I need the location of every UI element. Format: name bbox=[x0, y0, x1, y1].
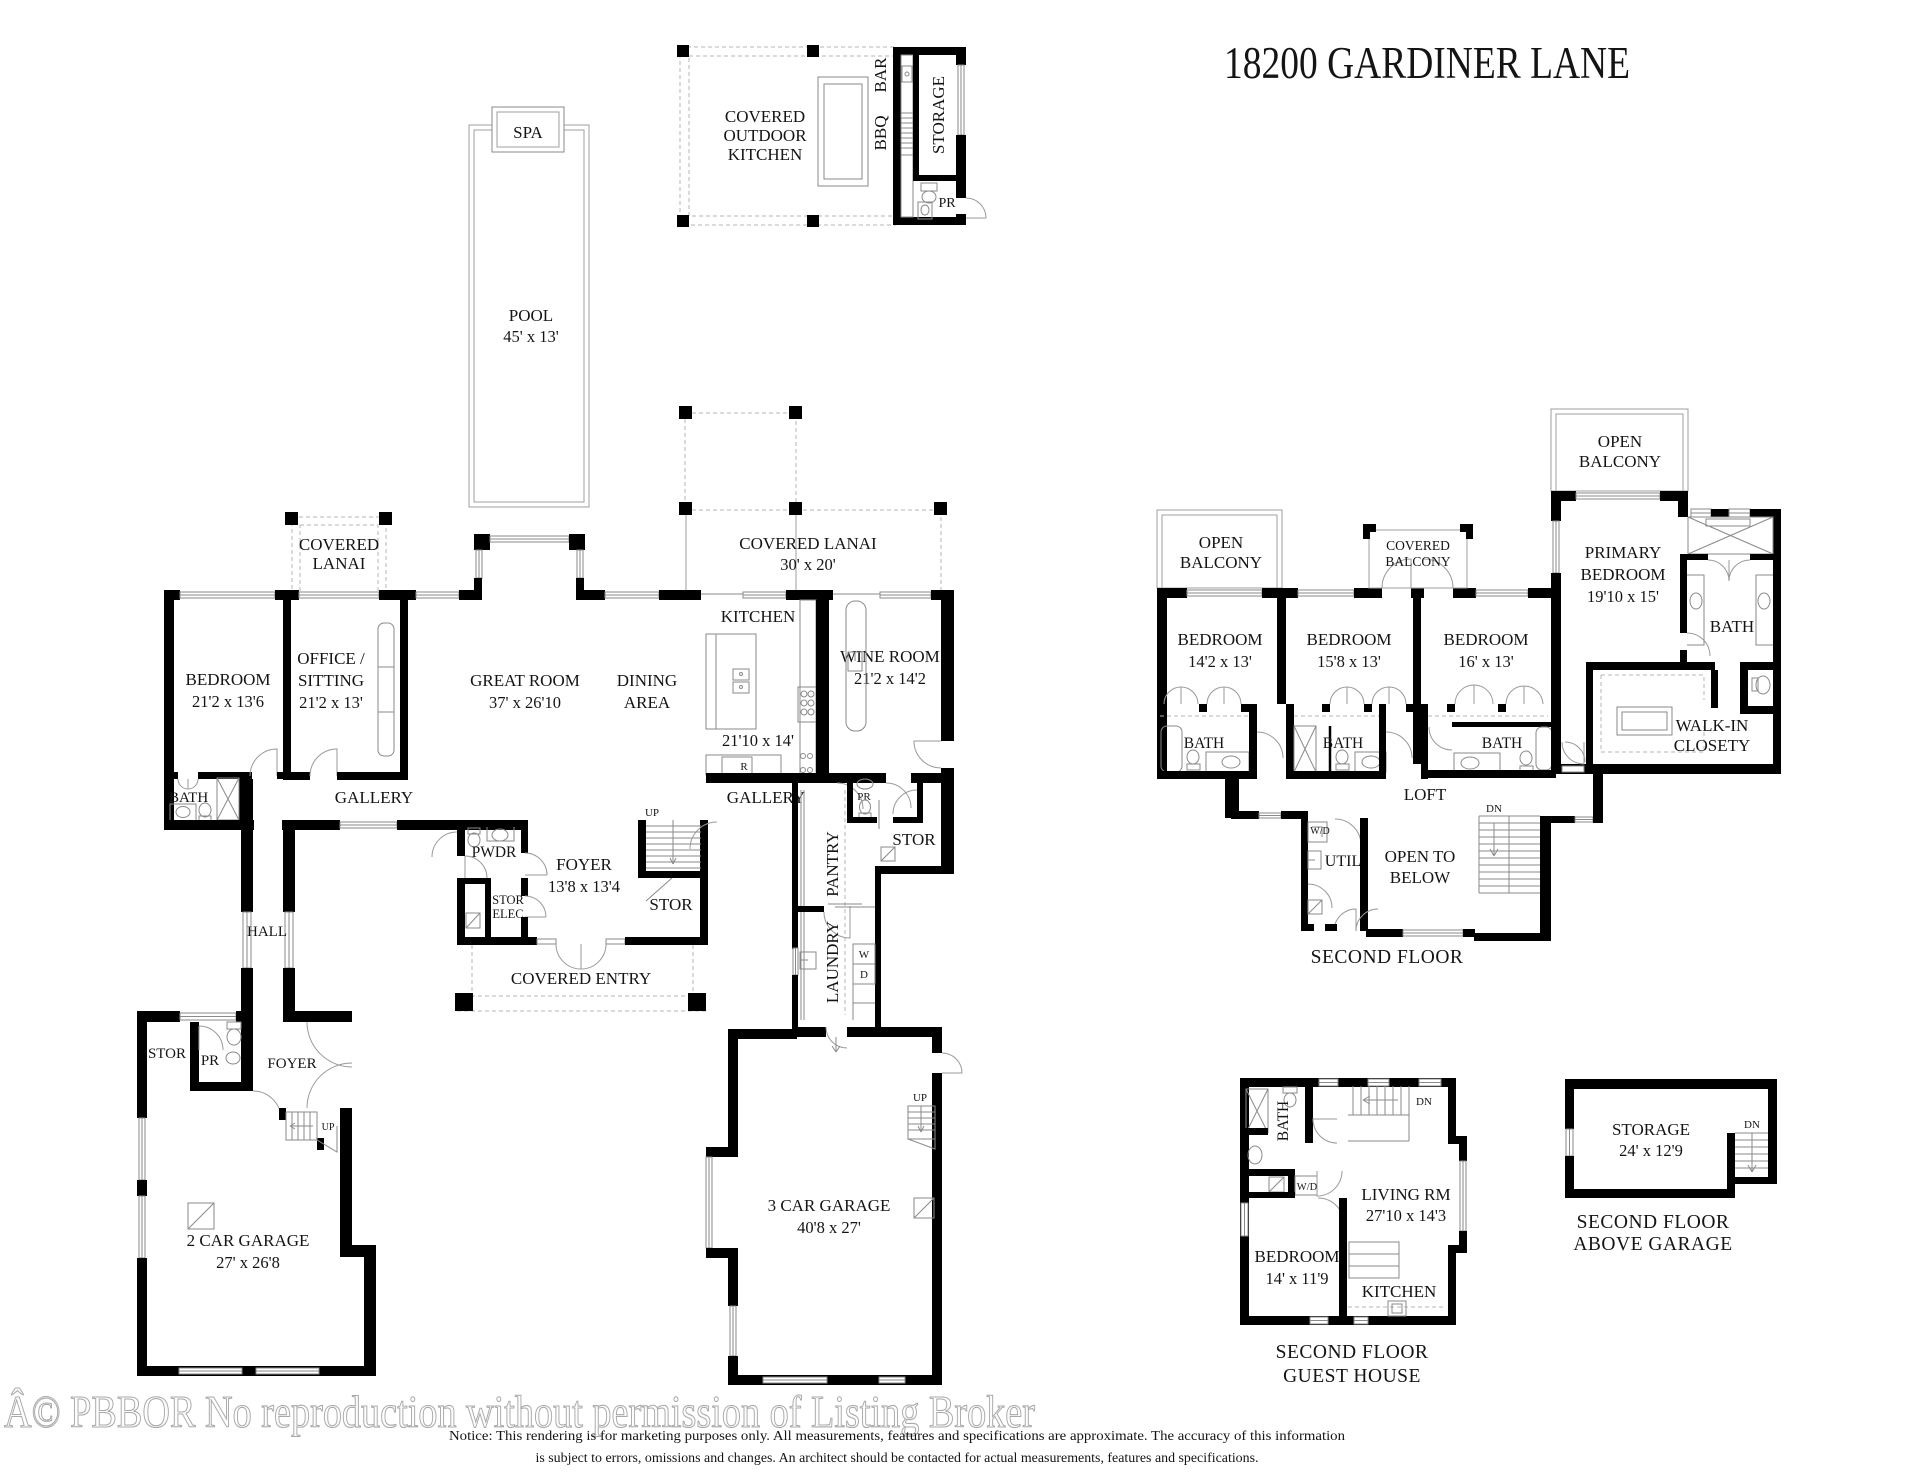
svg-text:BEDROOM: BEDROOM bbox=[1443, 630, 1528, 649]
svg-text:19'10 x 15': 19'10 x 15' bbox=[1587, 587, 1659, 606]
svg-text:BATH: BATH bbox=[1275, 1101, 1292, 1141]
svg-text:BATH: BATH bbox=[1323, 735, 1363, 752]
svg-text:15'8 x 13': 15'8 x 13' bbox=[1317, 652, 1381, 671]
svg-text:21'2 x 14'2: 21'2 x 14'2 bbox=[854, 669, 926, 688]
svg-text:GALLERY: GALLERY bbox=[335, 788, 413, 807]
svg-text:14' x 11'9: 14' x 11'9 bbox=[1265, 1269, 1328, 1288]
svg-text:BEDROOM: BEDROOM bbox=[1177, 630, 1262, 649]
svg-text:40'8 x 27': 40'8 x 27' bbox=[797, 1218, 861, 1237]
svg-text:DN: DN bbox=[1486, 803, 1502, 815]
svg-text:D: D bbox=[860, 969, 868, 981]
svg-text:STORAGE: STORAGE bbox=[929, 76, 948, 154]
svg-text:2 CAR GARAGE: 2 CAR GARAGE bbox=[187, 1231, 310, 1250]
svg-text:SPA: SPA bbox=[513, 123, 543, 142]
svg-text:OPEN: OPEN bbox=[1199, 533, 1243, 552]
svg-text:SECOND FLOOR: SECOND FLOOR bbox=[1311, 947, 1464, 968]
svg-text:PWDR: PWDR bbox=[472, 844, 517, 861]
svg-text:DN: DN bbox=[1416, 1096, 1432, 1108]
svg-text:BATH: BATH bbox=[1482, 735, 1522, 752]
svg-text:COVERED ENTRY: COVERED ENTRY bbox=[511, 969, 651, 988]
svg-text:LIVING RM: LIVING RM bbox=[1361, 1185, 1450, 1204]
svg-text:W: W bbox=[859, 949, 870, 961]
svg-text:BATH: BATH bbox=[1710, 617, 1754, 636]
svg-text:16' x 13': 16' x 13' bbox=[1458, 652, 1513, 671]
svg-text:STORAGE: STORAGE bbox=[1612, 1120, 1690, 1139]
svg-text:Notice: This rendering is for: Notice: This rendering is for marketing … bbox=[449, 1428, 1345, 1443]
svg-text:DN: DN bbox=[1744, 1119, 1760, 1131]
svg-text:LANAI: LANAI bbox=[313, 554, 366, 573]
svg-text:COVERED: COVERED bbox=[725, 107, 805, 126]
svg-text:STOR: STOR bbox=[492, 893, 524, 907]
svg-text:LOFT: LOFT bbox=[1404, 785, 1447, 804]
svg-text:BEDROOM: BEDROOM bbox=[1580, 565, 1665, 584]
svg-text:CLOSETY: CLOSETY bbox=[1674, 736, 1751, 755]
svg-text:BATH: BATH bbox=[169, 790, 208, 806]
svg-text:SITTING: SITTING bbox=[298, 671, 364, 690]
svg-text:ELEC: ELEC bbox=[492, 907, 523, 921]
svg-text:BELOW: BELOW bbox=[1390, 868, 1451, 887]
svg-text:WALK-IN: WALK-IN bbox=[1676, 716, 1749, 735]
svg-text:27' x 26'8: 27' x 26'8 bbox=[216, 1253, 280, 1272]
svg-text:14'2 x 13': 14'2 x 13' bbox=[1188, 652, 1252, 671]
svg-text:OPEN TO: OPEN TO bbox=[1385, 847, 1456, 866]
svg-text:PR: PR bbox=[938, 196, 956, 211]
svg-text:COVERED: COVERED bbox=[299, 535, 379, 554]
svg-text:PR: PR bbox=[201, 1053, 219, 1069]
svg-text:21'2 x 13'6: 21'2 x 13'6 bbox=[192, 692, 264, 711]
svg-text:SECOND FLOOR: SECOND FLOOR bbox=[1577, 1212, 1730, 1233]
svg-text:30' x 20': 30' x 20' bbox=[780, 555, 835, 574]
svg-text:13'8 x 13'4: 13'8 x 13'4 bbox=[548, 877, 620, 896]
svg-text:UP: UP bbox=[322, 1122, 335, 1133]
svg-text:27'10 x 14'3: 27'10 x 14'3 bbox=[1366, 1206, 1446, 1225]
svg-text:R: R bbox=[740, 761, 748, 773]
svg-text:21'10 x 14': 21'10 x 14' bbox=[722, 731, 794, 750]
svg-text:BALCONY: BALCONY bbox=[1579, 452, 1661, 471]
svg-text:BALCONY: BALCONY bbox=[1385, 554, 1451, 569]
svg-text:PRIMARY: PRIMARY bbox=[1585, 543, 1662, 562]
svg-text:W/D: W/D bbox=[1310, 826, 1329, 837]
svg-text:BEDROOM: BEDROOM bbox=[1254, 1247, 1339, 1266]
svg-text:GUEST HOUSE: GUEST HOUSE bbox=[1283, 1366, 1421, 1387]
svg-text:UP: UP bbox=[913, 1092, 927, 1104]
svg-text:STOR: STOR bbox=[148, 1046, 186, 1062]
svg-text:LAUNDRY: LAUNDRY bbox=[823, 921, 842, 1003]
svg-text:3 CAR GARAGE: 3 CAR GARAGE bbox=[768, 1196, 891, 1215]
svg-text:POOL: POOL bbox=[509, 306, 553, 325]
svg-text:KITCHEN: KITCHEN bbox=[1362, 1282, 1437, 1301]
svg-text:KITCHEN: KITCHEN bbox=[721, 607, 796, 626]
svg-text:FOYER: FOYER bbox=[267, 1056, 316, 1072]
svg-text:BALCONY: BALCONY bbox=[1180, 553, 1262, 572]
svg-text:W/D: W/D bbox=[1297, 1182, 1318, 1193]
svg-text:PR: PR bbox=[857, 791, 871, 803]
svg-text:SECOND FLOOR: SECOND FLOOR bbox=[1276, 1342, 1429, 1363]
svg-text:OFFICE /: OFFICE / bbox=[297, 649, 365, 668]
svg-text:AREA: AREA bbox=[624, 693, 671, 712]
svg-text:ABOVE GARAGE: ABOVE GARAGE bbox=[1573, 1234, 1732, 1255]
svg-text:BAR: BAR bbox=[871, 57, 890, 93]
svg-text:DINING: DINING bbox=[617, 671, 677, 690]
svg-text:OPEN: OPEN bbox=[1598, 432, 1642, 451]
svg-text:PANTRY: PANTRY bbox=[823, 831, 842, 897]
svg-text:18200 GARDINER LANE: 18200 GARDINER LANE bbox=[1224, 38, 1630, 88]
svg-text:is subject to errors, omission: is subject to errors, omissions and chan… bbox=[536, 1450, 1259, 1465]
svg-text:45' x 13': 45' x 13' bbox=[503, 327, 558, 346]
svg-text:KITCHEN: KITCHEN bbox=[728, 145, 803, 164]
svg-text:BBQ: BBQ bbox=[871, 116, 890, 151]
svg-text:FOYER: FOYER bbox=[556, 855, 612, 874]
svg-text:BEDROOM: BEDROOM bbox=[1306, 630, 1391, 649]
svg-text:21'2 x 13': 21'2 x 13' bbox=[299, 693, 363, 712]
svg-text:GREAT ROOM: GREAT ROOM bbox=[470, 671, 580, 690]
svg-text:BEDROOM: BEDROOM bbox=[185, 670, 270, 689]
svg-text:COVERED LANAI: COVERED LANAI bbox=[739, 534, 877, 553]
svg-text:BATH: BATH bbox=[1184, 735, 1224, 752]
svg-text:37' x 26'10: 37' x 26'10 bbox=[489, 693, 561, 712]
svg-text:STOR: STOR bbox=[892, 830, 936, 849]
svg-text:UP: UP bbox=[645, 807, 659, 819]
svg-text:COVERED: COVERED bbox=[1386, 538, 1450, 553]
svg-text:UTIL: UTIL bbox=[1325, 853, 1361, 870]
svg-text:HALL: HALL bbox=[247, 924, 287, 940]
svg-text:24' x 12'9: 24' x 12'9 bbox=[1619, 1141, 1683, 1160]
svg-text:STOR: STOR bbox=[649, 895, 693, 914]
svg-text:OUTDOOR: OUTDOOR bbox=[723, 126, 807, 145]
